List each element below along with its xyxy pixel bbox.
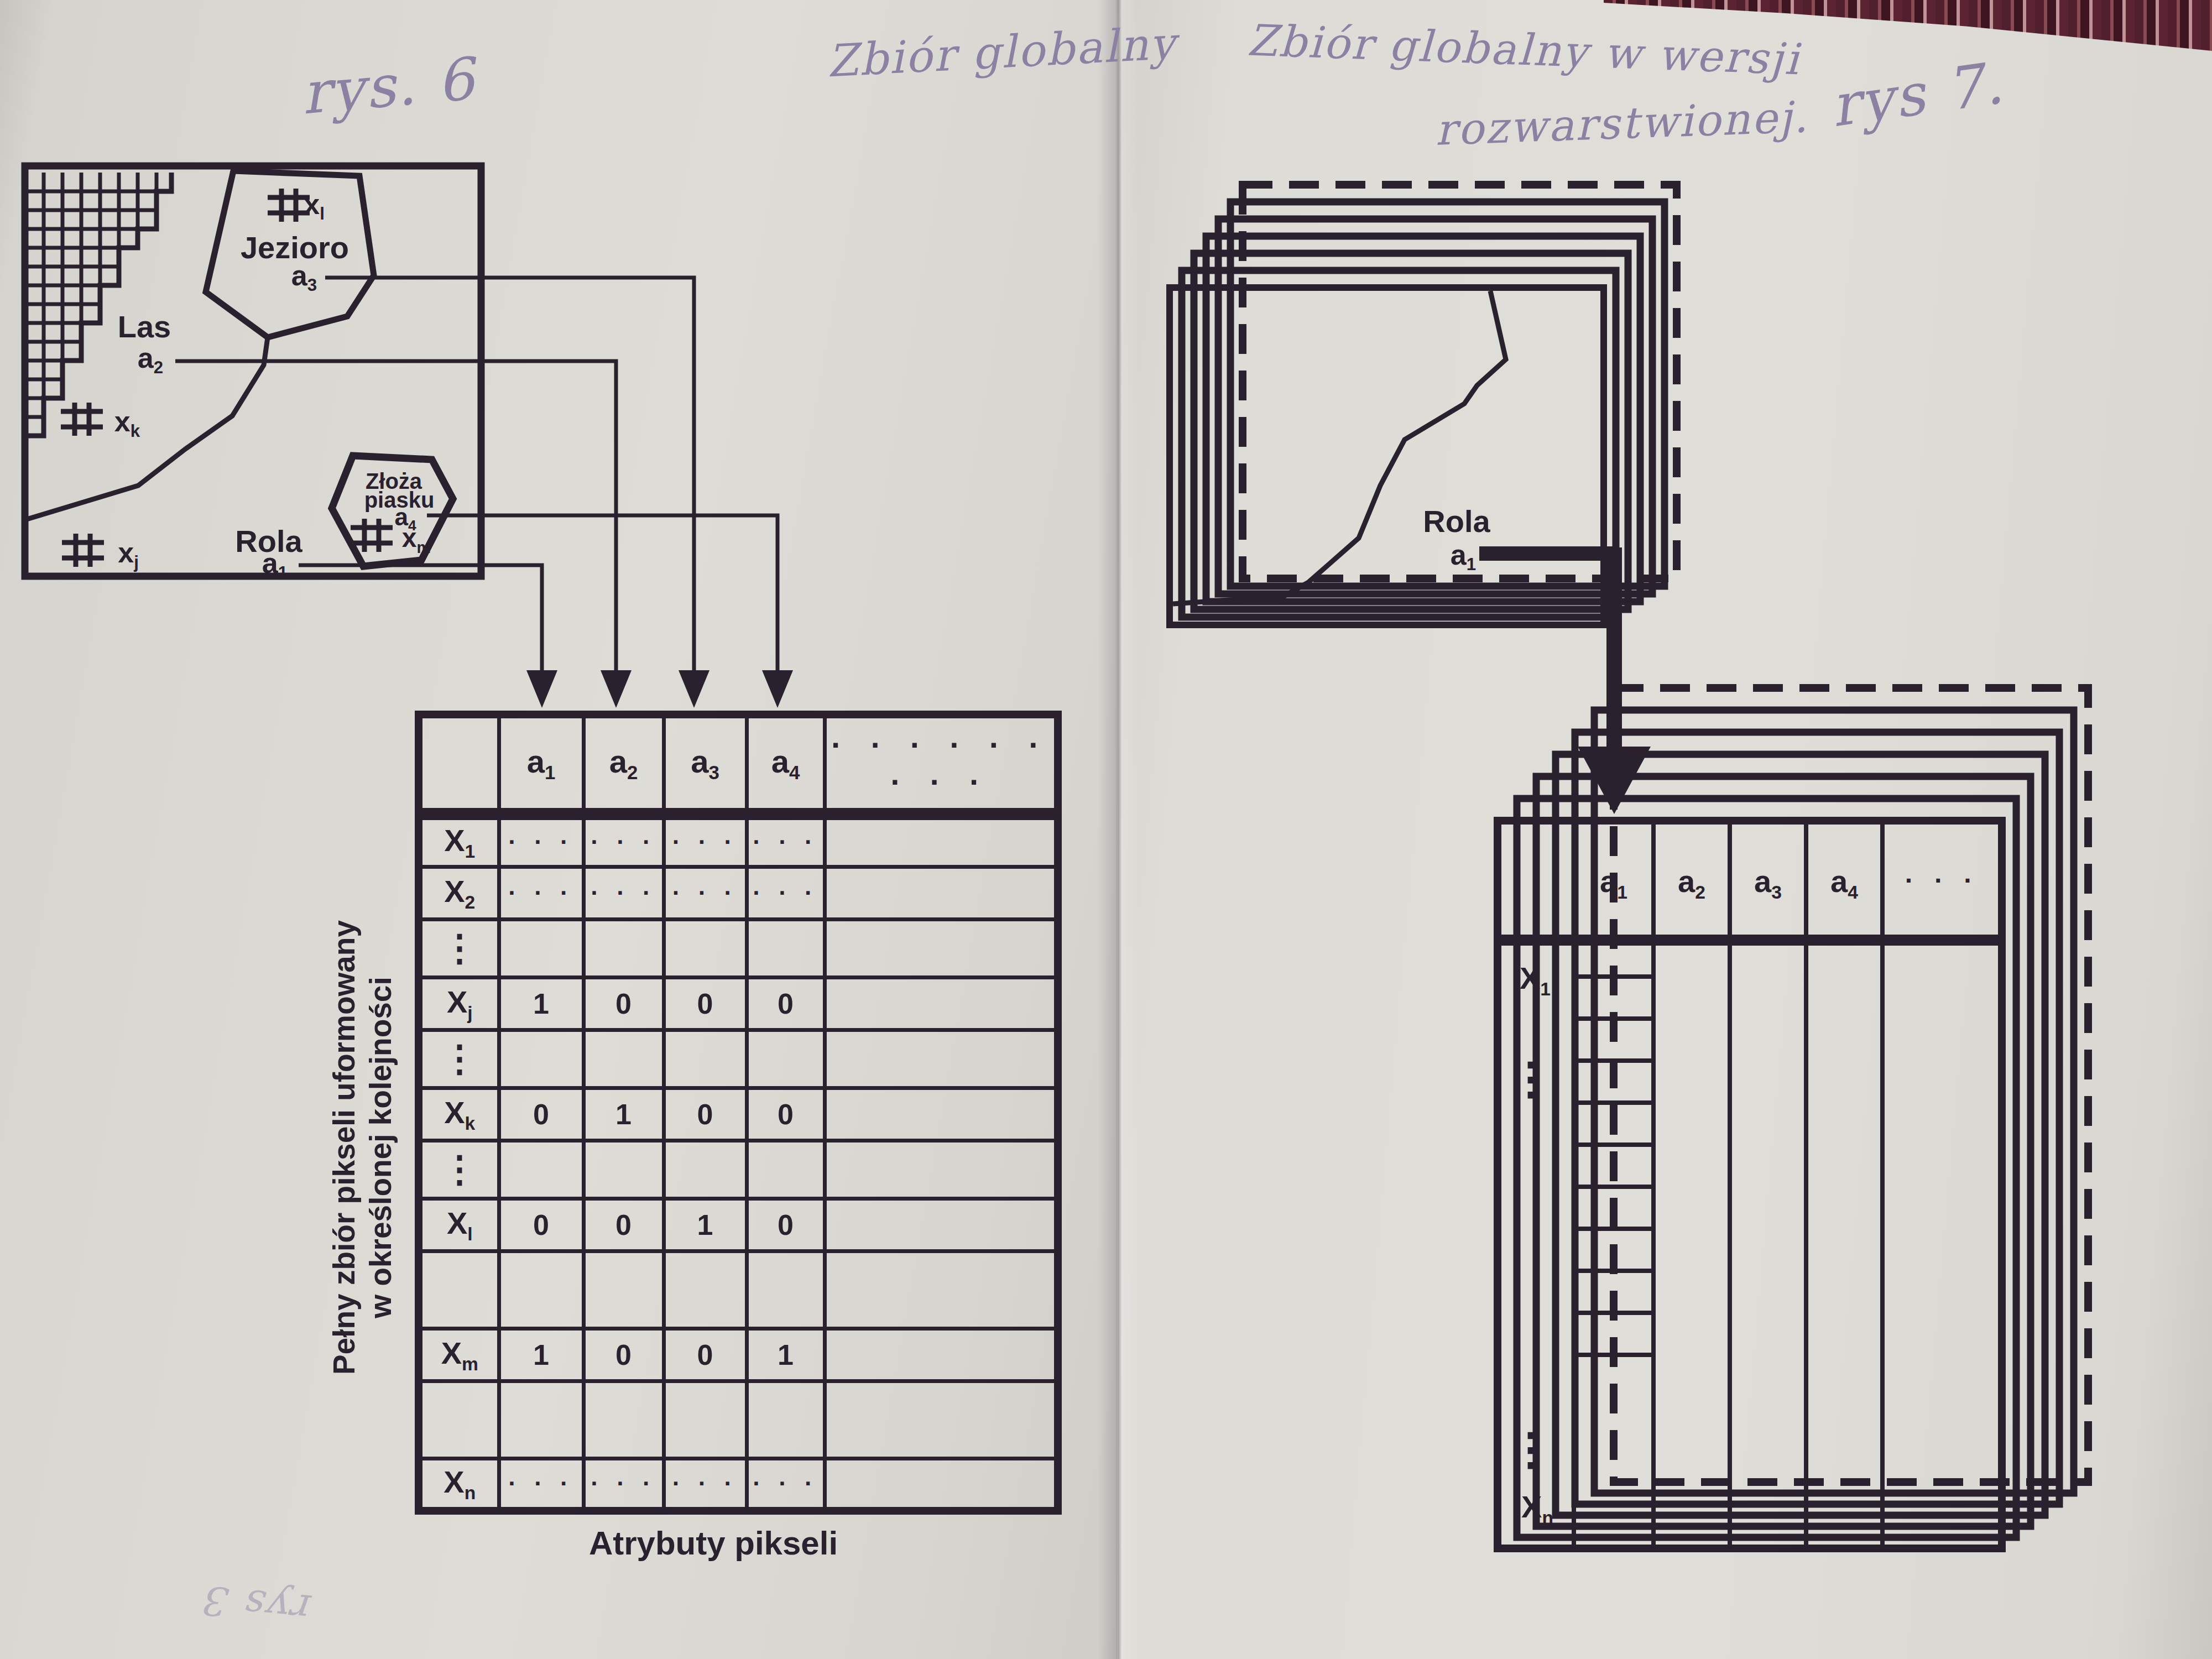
table-layer-stack [1498, 688, 2088, 1548]
marker-label-xj: xj [118, 536, 139, 573]
col-header-a1: a1 [499, 714, 583, 814]
right-col-header-a1: a1 [1600, 863, 1627, 903]
table-row: X1 · · ·· · ·· · ·· · · [419, 814, 1058, 867]
map-sheet-front [1170, 288, 1604, 625]
table-row: Xj 1000 [419, 977, 1058, 1030]
marker-xk-icon [61, 403, 103, 436]
table-sheet [1575, 732, 2059, 1504]
marker-label-xm: xm [402, 523, 431, 556]
right-row-label-xn: Xn [1521, 1489, 1553, 1528]
stack-region-label-rola: Rola [1423, 503, 1490, 539]
table-caption: Atrybuty pikseli [589, 1524, 838, 1562]
attr-label-a3: a3 [291, 259, 317, 296]
table-row-empty [419, 1251, 1058, 1328]
right-vdots-bottom: ⋮ [1509, 1423, 1553, 1475]
faint-corner-scribble: rys 3 [203, 1577, 315, 1633]
attr-label-a2: a2 [138, 341, 163, 378]
table-header-row: a1 a2 a3 a4 · · · · · · · · · [419, 714, 1058, 814]
arrow-down-icon [601, 670, 632, 708]
marker-xm-icon [351, 519, 393, 552]
right-col-header-a2: a2 [1678, 863, 1705, 903]
attr-label-a1: a1 [262, 546, 288, 583]
col-header-a4: a4 [747, 714, 825, 814]
marker-label-xk: xk [114, 405, 140, 442]
marker-label-xl: xl [304, 187, 325, 225]
table-row: Xl 0010 [419, 1198, 1058, 1251]
table-row-dots: ⋮ [419, 919, 1058, 977]
table-row-dots: ⋮ [419, 1140, 1058, 1198]
table-row-dots: ⋮ [419, 1030, 1058, 1088]
table-row-empty [419, 1381, 1058, 1458]
right-col-header-a3: a3 [1754, 863, 1782, 903]
col-header-a2: a2 [583, 714, 664, 814]
arrow-down-icon [679, 670, 709, 708]
table-row: Xk 0100 [419, 1088, 1058, 1140]
connector-a1 [299, 565, 542, 672]
corner-cell [419, 714, 499, 814]
table-row: Xm 1001 [419, 1328, 1058, 1381]
table-row: Xn · · ·· · ·· · ·· · · [419, 1458, 1058, 1511]
right-col-header-more: · · · [1905, 865, 1980, 896]
table-side-label: Pełny zbiór pikseli uformowany w określo… [326, 782, 399, 1512]
attribute-table: a1 a2 a3 a4 · · · · · · · · · X1 · · ·· … [415, 711, 1062, 1515]
marker-xj-icon [62, 534, 104, 567]
region-label-las: Las [118, 309, 171, 345]
map-sheet [1182, 270, 1616, 617]
arrow-down-icon [526, 670, 557, 708]
col-header-a3: a3 [664, 714, 747, 814]
map-layer-stack [1170, 185, 1677, 814]
right-row-label-x1: X1 [1520, 960, 1551, 1000]
right-vdots-top: ⋮ [1509, 1053, 1553, 1104]
stack-attr-label-a1: a1 [1451, 538, 1476, 575]
table-row: X2 · · ·· · ·· · ·· · · [419, 867, 1058, 919]
arrow-down-icon [762, 670, 793, 708]
col-header-more: · · · · · · · · · [825, 714, 1058, 814]
right-col-header-a4: a4 [1830, 863, 1858, 903]
